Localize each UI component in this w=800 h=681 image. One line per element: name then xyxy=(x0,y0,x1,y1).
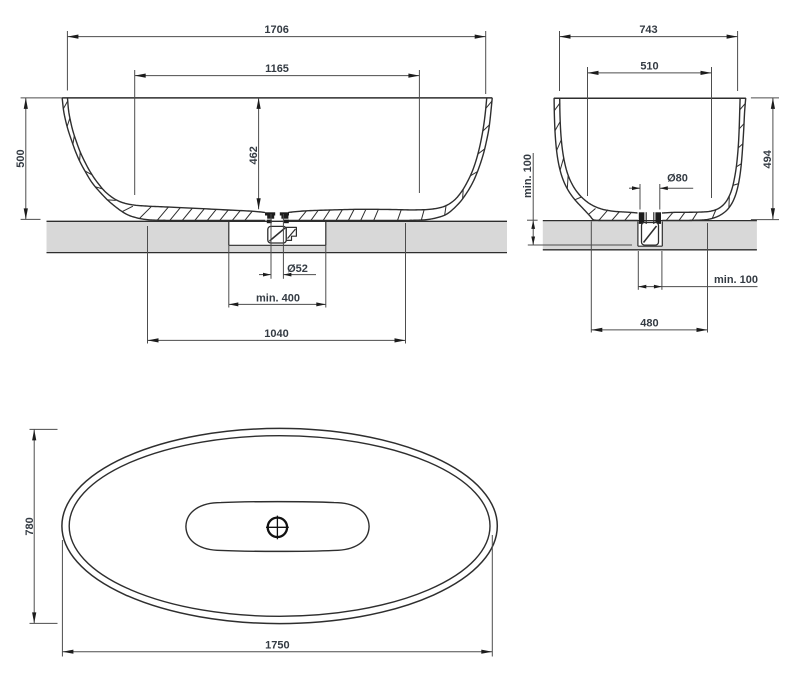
svg-text:Ø52: Ø52 xyxy=(287,263,308,275)
svg-text:494: 494 xyxy=(762,149,774,168)
svg-text:1706: 1706 xyxy=(264,24,288,36)
svg-text:min. 100: min. 100 xyxy=(714,274,758,286)
svg-text:462: 462 xyxy=(248,146,260,164)
svg-text:780: 780 xyxy=(24,517,36,535)
svg-text:min. 400: min. 400 xyxy=(256,293,300,305)
svg-text:1040: 1040 xyxy=(264,328,288,340)
svg-text:1165: 1165 xyxy=(265,63,289,75)
svg-text:min. 100: min. 100 xyxy=(522,154,534,198)
svg-text:743: 743 xyxy=(639,24,657,36)
svg-text:510: 510 xyxy=(640,61,658,73)
svg-text:500: 500 xyxy=(15,149,27,167)
svg-text:480: 480 xyxy=(640,318,658,330)
svg-text:1750: 1750 xyxy=(265,639,289,651)
svg-text:Ø80: Ø80 xyxy=(667,172,688,184)
